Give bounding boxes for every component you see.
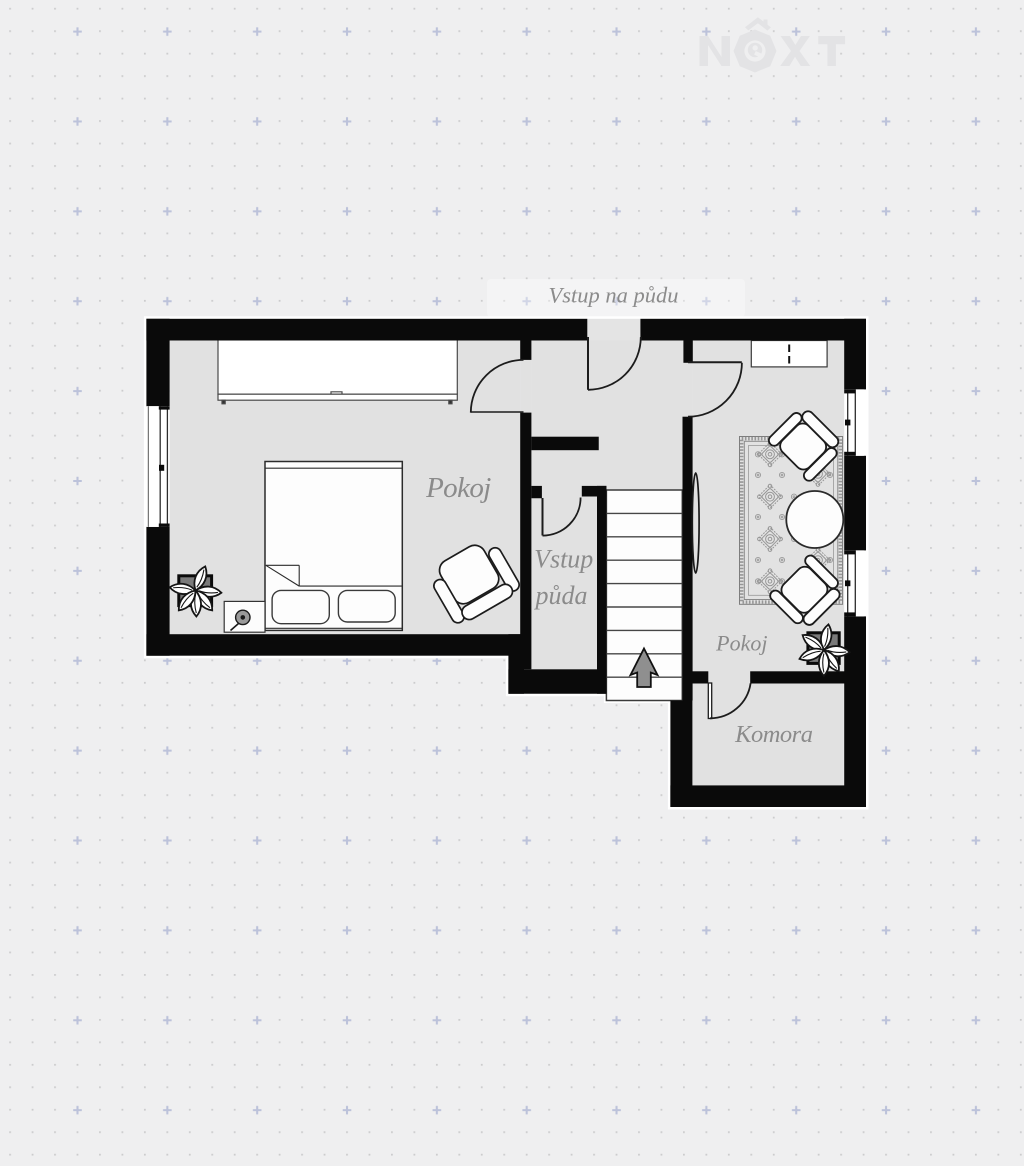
svg-text:Pokoj: Pokoj (425, 472, 491, 504)
svg-text:Vstup na půdu: Vstup na půdu (548, 283, 678, 308)
svg-text:půda: půda (534, 581, 588, 610)
svg-text:Pokoj: Pokoj (715, 630, 767, 655)
svg-text:Komora: Komora (734, 721, 813, 748)
svg-text:Vstup: Vstup (534, 545, 593, 574)
